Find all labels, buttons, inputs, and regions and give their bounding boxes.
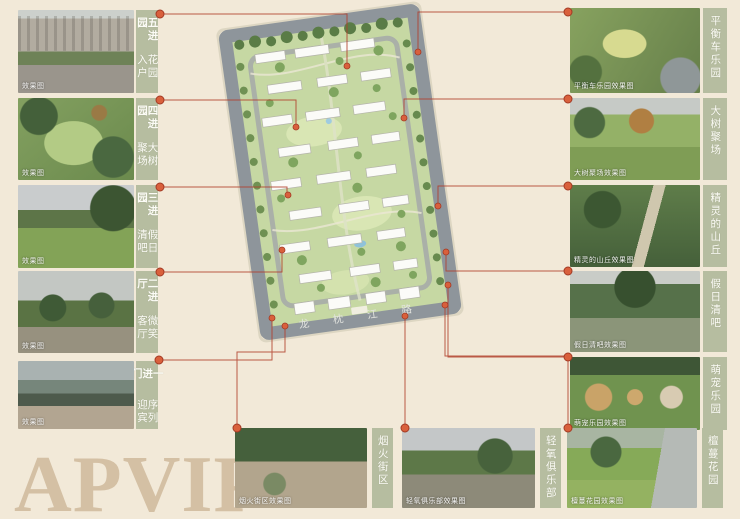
label-strip: 三进园 假日清吧 xyxy=(136,185,158,268)
photo-smile-lounge: 效果图 xyxy=(18,271,134,353)
photo-caption: 檀蔓花园效果图 xyxy=(571,498,624,505)
photo-holiday-bar: 假日清吧效果图 xyxy=(570,271,700,352)
label-strip: 大树聚场 xyxy=(703,98,727,180)
photo-pet-park: 萌宠乐园效果图 xyxy=(570,357,700,430)
callout-right-1: 平衡车乐园效果图 平衡车乐园 xyxy=(570,8,727,93)
photo-caption: 效果图 xyxy=(22,258,45,265)
callout-left-4: 效果图 二进厅 微笑客厅 xyxy=(18,271,158,353)
photo-caption: 萌宠乐园效果图 xyxy=(574,420,627,427)
photo-oxygen-club: 轻氧俱乐部效果图 xyxy=(402,428,535,508)
photo-garden-entry: 效果图 xyxy=(18,10,134,93)
photo-welcome-gate: 效果图 xyxy=(18,361,134,429)
photo-elf-hill: 精灵的山丘效果图 xyxy=(570,185,700,267)
site-plan-group: 龙枕江路 xyxy=(217,2,463,341)
photo-street-block: 烟火街区效果图 xyxy=(235,428,367,508)
label-title: 假日清吧 xyxy=(710,278,721,330)
callout-left-5: 效果图 一进门 序列迎宾 xyxy=(18,361,158,429)
photo-vine-garden: 檀蔓花园效果图 xyxy=(567,428,697,508)
photo-caption: 精灵的山丘效果图 xyxy=(574,257,634,264)
callout-right-5: 萌宠乐园效果图 萌宠乐园 xyxy=(570,357,727,430)
label-strip: 烟火街区 xyxy=(372,428,393,508)
photo-tree-plaza: 效果图 xyxy=(18,98,134,180)
label-strip: 一进门 序列迎宾 xyxy=(136,361,158,429)
label-title: 平衡车乐园 xyxy=(710,15,721,80)
callout-left-1: 效果图 五进园 花园入户 xyxy=(18,10,158,93)
callout-bottom-2: 轻氧俱乐部效果图 轻氧俱乐部 xyxy=(402,428,561,508)
photo-balance-bike-park: 平衡车乐园效果图 xyxy=(570,8,700,93)
label-subtitle: 花园入户 xyxy=(137,54,158,93)
label-strip: 平衡车乐园 xyxy=(703,8,727,93)
label-title: 二进厅 xyxy=(137,278,158,307)
photo-big-tree-plaza: 大树聚场效果图 xyxy=(570,98,700,180)
photo-caption: 效果图 xyxy=(22,170,45,177)
callout-bottom-1: 烟火街区效果图 烟火街区 xyxy=(235,428,393,508)
label-subtitle: 序列迎宾 xyxy=(137,399,158,429)
callout-left-2: 效果图 四进园 大树聚场 xyxy=(18,98,158,180)
label-subtitle: 假日清吧 xyxy=(137,229,158,268)
label-subtitle: 微笑客厅 xyxy=(137,315,158,353)
callout-right-4: 假日清吧效果图 假日清吧 xyxy=(570,271,727,352)
photo-caption: 大树聚场效果图 xyxy=(574,170,627,177)
photo-caption: 平衡车乐园效果图 xyxy=(574,83,634,90)
label-title: 一进门 xyxy=(131,368,163,391)
callout-right-3: 精灵的山丘效果图 精灵的山丘 xyxy=(570,185,727,267)
photo-holiday-bar-lawn: 效果图 xyxy=(18,185,134,268)
photo-caption: 假日清吧效果图 xyxy=(574,342,627,349)
label-title: 轻氧俱乐部 xyxy=(545,435,556,500)
label-title: 大树聚场 xyxy=(710,105,721,157)
label-strip: 檀蔓花园 xyxy=(702,428,723,508)
label-title: 三进园 xyxy=(137,192,158,221)
label-title: 五进园 xyxy=(137,17,158,46)
masterplan-poster: APVIP xyxy=(0,0,740,519)
callout-bottom-3: 檀蔓花园效果图 檀蔓花园 xyxy=(567,428,723,508)
photo-caption: 效果图 xyxy=(22,343,45,350)
label-strip: 四进园 大树聚场 xyxy=(136,98,158,180)
label-title: 精灵的山丘 xyxy=(710,192,721,257)
label-strip: 五进园 花园入户 xyxy=(136,10,158,93)
label-subtitle: 大树聚场 xyxy=(137,142,158,180)
label-strip: 二进厅 微笑客厅 xyxy=(136,271,158,353)
label-title: 檀蔓花园 xyxy=(707,435,718,487)
label-title: 萌宠乐园 xyxy=(710,364,721,416)
photo-caption: 效果图 xyxy=(22,419,45,426)
photo-caption: 烟火街区效果图 xyxy=(239,498,292,505)
callout-right-2: 大树聚场效果图 大树聚场 xyxy=(570,98,727,180)
photo-caption: 效果图 xyxy=(22,83,45,90)
label-strip: 精灵的山丘 xyxy=(703,185,727,267)
label-strip: 轻氧俱乐部 xyxy=(540,428,561,508)
label-title: 四进园 xyxy=(137,105,158,134)
photo-caption: 轻氧俱乐部效果图 xyxy=(406,498,466,505)
label-strip: 假日清吧 xyxy=(703,271,727,352)
callout-left-3: 效果图 三进园 假日清吧 xyxy=(18,185,158,268)
label-strip: 萌宠乐园 xyxy=(703,357,727,430)
label-title: 烟火街区 xyxy=(377,435,388,487)
